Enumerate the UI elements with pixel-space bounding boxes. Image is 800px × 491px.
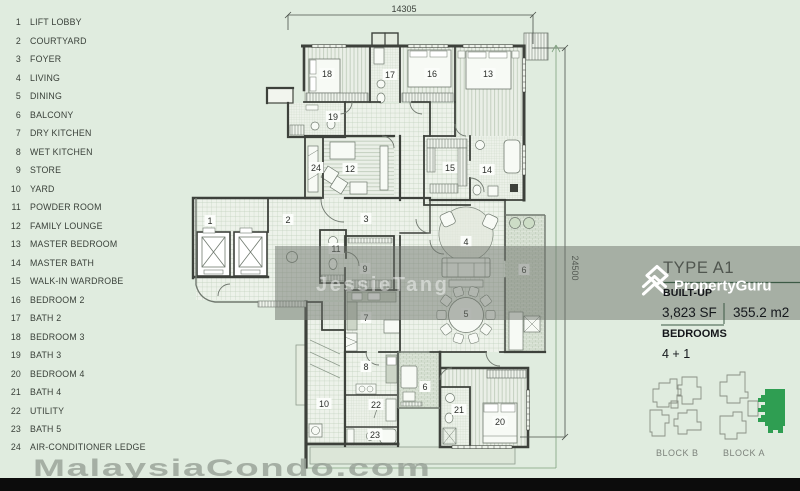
svg-text:22: 22 (371, 400, 381, 410)
svg-text:17: 17 (385, 70, 395, 80)
svg-text:15: 15 (445, 163, 455, 173)
svg-text:1: 1 (207, 216, 212, 226)
svg-text:21: 21 (454, 405, 464, 415)
svg-text:24: 24 (311, 163, 321, 173)
svg-text:20: 20 (495, 417, 505, 427)
svg-text:19: 19 (328, 112, 338, 122)
svg-text:23: 23 (370, 430, 380, 440)
svg-text:18: 18 (322, 69, 332, 79)
svg-text:14: 14 (482, 165, 492, 175)
svg-text:8: 8 (363, 362, 368, 372)
svg-text:2: 2 (285, 215, 290, 225)
svg-text:3: 3 (363, 214, 368, 224)
svg-text:12: 12 (345, 164, 355, 174)
svg-text:10: 10 (319, 399, 329, 409)
svg-text:14305: 14305 (391, 4, 416, 14)
svg-text:6: 6 (422, 382, 427, 392)
svg-text:16: 16 (427, 69, 437, 79)
svg-text:13: 13 (483, 69, 493, 79)
